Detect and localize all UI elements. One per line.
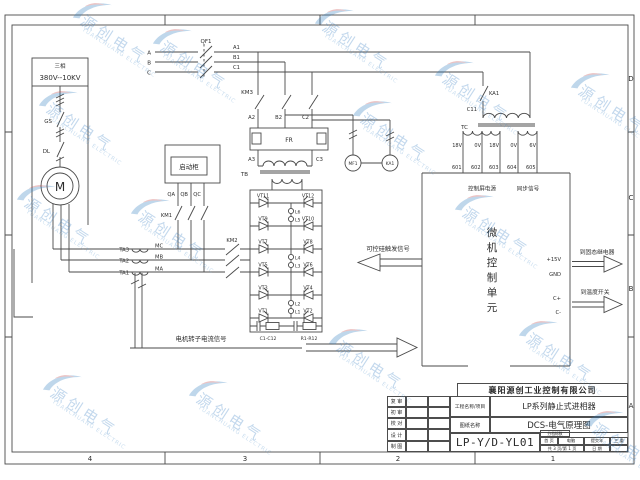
mini-cell: 日 期 [584, 445, 610, 452]
km3-label: KM3 [241, 90, 253, 96]
date-cell [428, 429, 450, 441]
ta1-label: TA1 [118, 271, 129, 277]
arrow-to-temp [604, 297, 622, 313]
km1-contacts [175, 206, 208, 220]
ka1-contact-label: KA1 [489, 91, 499, 97]
mcu-char: 元 [487, 302, 498, 314]
km2-label: KM2 [226, 238, 237, 244]
vt5-label: VT5 [258, 263, 267, 269]
qf1-label: QF1 [201, 39, 212, 45]
ta2-label: TA2 [118, 259, 129, 265]
phase-b-label: B [147, 61, 151, 67]
c3-label: C3 [316, 157, 323, 163]
r-group-label: R1-R12 [301, 336, 318, 342]
mf1-label: MF1 [349, 161, 358, 167]
signature-cell [406, 429, 428, 441]
review-row-label: 校 对 [387, 418, 406, 429]
km3-contacts [255, 95, 318, 109]
frame-number: 3 [243, 455, 247, 463]
supply-voltage-label: 380V--10KV [39, 74, 80, 82]
mcu-char: 单 [487, 287, 498, 299]
tc-volt-label: 18V [489, 143, 499, 149]
arrow-to-relay [604, 256, 622, 272]
frame-number: 4 [88, 455, 93, 463]
tb-label: TB [240, 172, 248, 178]
sync-signal-label: 同步信号 [517, 185, 540, 193]
date-cell [428, 441, 450, 452]
qc-label: QC [193, 192, 201, 198]
tb-transformer [258, 161, 312, 190]
signature-cell [406, 407, 428, 418]
tc-terminal-label: 604 [507, 165, 517, 171]
title-block: 襄阳源创工业控制有限公司 复 审 初 审 校 对 设 计 制 图 工程名称/项目… [387, 383, 628, 452]
rotor-signal-label: 电机转子电流信号 [175, 334, 226, 343]
tc-terminal-label: 601 [452, 165, 462, 171]
power-source-label: 控制屏电源 [468, 185, 496, 193]
cminus-label: C- [556, 310, 562, 316]
vt7-label: VT7 [258, 240, 267, 246]
review-row-label: 设 计 [387, 429, 406, 441]
cabinet-label: 启动柜 [179, 162, 199, 171]
dl-label: DL [43, 149, 51, 155]
p15v-label: +15V [547, 257, 562, 263]
mcu-box [422, 173, 570, 366]
vt12-label: VT12 [302, 194, 314, 200]
cplus-label: C+ [553, 296, 561, 302]
mcu-char: 微 [487, 226, 498, 239]
phase-a-label: A [147, 51, 151, 57]
phase-c-label: C [147, 71, 151, 77]
review-row-label: 制 图 [387, 441, 406, 452]
mini-cell: 首 页 [540, 437, 558, 445]
mini-table-head: 分档标数 [540, 430, 570, 437]
company-name: 襄阳源创工业控制有限公司 [457, 383, 628, 397]
gs-switch [57, 112, 64, 127]
mc-label: MC [155, 244, 163, 250]
l4-label: L4 [295, 256, 301, 262]
frame-letter: C [629, 194, 634, 202]
signature-cell [406, 418, 428, 429]
drawing-name-label: 图纸名称 [450, 417, 490, 433]
l6-label: L6 [295, 210, 301, 216]
tc-label: TC [460, 125, 468, 131]
fan-relay-circuit [285, 115, 398, 171]
ka1-contact [480, 86, 488, 101]
vt2-label: VT2 [303, 309, 312, 315]
drawing-canvas: D C B A 4 3 2 1 三相 380V--10KV GS DL M A … [0, 0, 640, 480]
frame-number: 2 [396, 455, 400, 463]
frame-letter: A [629, 402, 634, 410]
km2-contacts [226, 244, 239, 278]
frame-letter: B [629, 285, 634, 293]
tc-volt-label: 0V [474, 143, 481, 149]
motor-label: M [55, 180, 65, 194]
date-cell [428, 407, 450, 418]
to-relay-label: 到固态继电器 [580, 248, 615, 256]
mini-cell: 电脑 [558, 437, 584, 445]
arrow-trigger [358, 254, 380, 271]
c1-label: C1 [233, 65, 240, 71]
signature-cell [406, 441, 428, 452]
vt11-label: VT11 [257, 194, 269, 200]
mcu-char: 机 [487, 241, 498, 254]
c11-label: C11 [467, 107, 477, 113]
trigger-signal-label: 可控硅触发信号 [366, 245, 409, 253]
to-temp-label: 到温度开关 [581, 288, 610, 296]
project-label: 工程名称/项目 [450, 396, 490, 417]
vt6-label: VT6 [303, 263, 312, 269]
mini-cell: 共 3 页/第 1 页 [540, 445, 584, 452]
fuse-hatch-marks [349, 130, 394, 141]
km1-label: KM1 [161, 213, 172, 219]
mb-label: MB [155, 255, 163, 261]
fr-label: FR [285, 137, 293, 144]
dl-switch [57, 142, 64, 157]
arrow-rotor [397, 338, 417, 357]
vt9-label: VT9 [258, 217, 267, 223]
a3-label: A3 [248, 157, 255, 163]
b1-label: B1 [233, 55, 240, 61]
signal-arrows [306, 254, 622, 357]
b2-label: B2 [275, 115, 282, 121]
date-cell [428, 396, 450, 407]
drawing-code: LP-Y/D-YL01 [450, 433, 540, 452]
qf1-contacts [200, 46, 212, 78]
tc-terminal-label: 603 [489, 165, 499, 171]
c2-label: C2 [302, 115, 309, 121]
ma-label: MA [155, 267, 163, 273]
frame-number: 1 [551, 455, 555, 463]
tc-terminal-label: 605 [526, 165, 536, 171]
review-row-label: 复 审 [387, 396, 406, 407]
project-value: LP系列静止式进相器 [490, 396, 628, 417]
c-group-label: C1-C12 [260, 336, 277, 342]
ct-secondary-wires [131, 273, 146, 348]
ta3-label: TA3 [118, 248, 129, 254]
frame-letter: D [628, 75, 633, 83]
vt10-label: VT10 [302, 217, 314, 223]
ct-symbols [132, 249, 148, 275]
qb-label: QB [180, 192, 188, 198]
ka1-coil-label: KA1 [386, 161, 395, 167]
vt4-label: VT4 [303, 286, 312, 292]
gnd-label: GND [549, 272, 561, 278]
l2-label: L2 [295, 302, 301, 308]
mcu-char: 控 [487, 256, 498, 269]
vt1-label: VT1 [258, 309, 267, 315]
review-row-label: 初 审 [387, 407, 406, 418]
tc-volt-label: 18V [452, 143, 462, 149]
l3-label: L3 [295, 264, 301, 270]
gs-label: GS [44, 119, 52, 125]
supply-circuit [14, 58, 88, 317]
tc-volt-label: 0V [510, 143, 517, 149]
date-cell [428, 418, 450, 429]
mini-cell [610, 445, 628, 452]
mini-cell: 三 重 [610, 437, 628, 445]
mcu-char: 制 [487, 271, 498, 284]
vt8-label: VT8 [303, 240, 312, 246]
l1-label: L1 [295, 310, 301, 316]
qa-label: QA [167, 192, 175, 198]
signature-cell [406, 396, 428, 407]
tc-terminal-label: 602 [471, 165, 481, 171]
supply-phase-label: 三相 [54, 62, 66, 70]
a2-label: A2 [248, 115, 255, 121]
vt3-label: VT3 [258, 286, 267, 292]
a1-label: A1 [233, 45, 240, 51]
l5-label: L5 [295, 218, 301, 224]
mini-cell: 提交年 [584, 437, 610, 445]
tc-volt-label: 6V [529, 143, 536, 149]
